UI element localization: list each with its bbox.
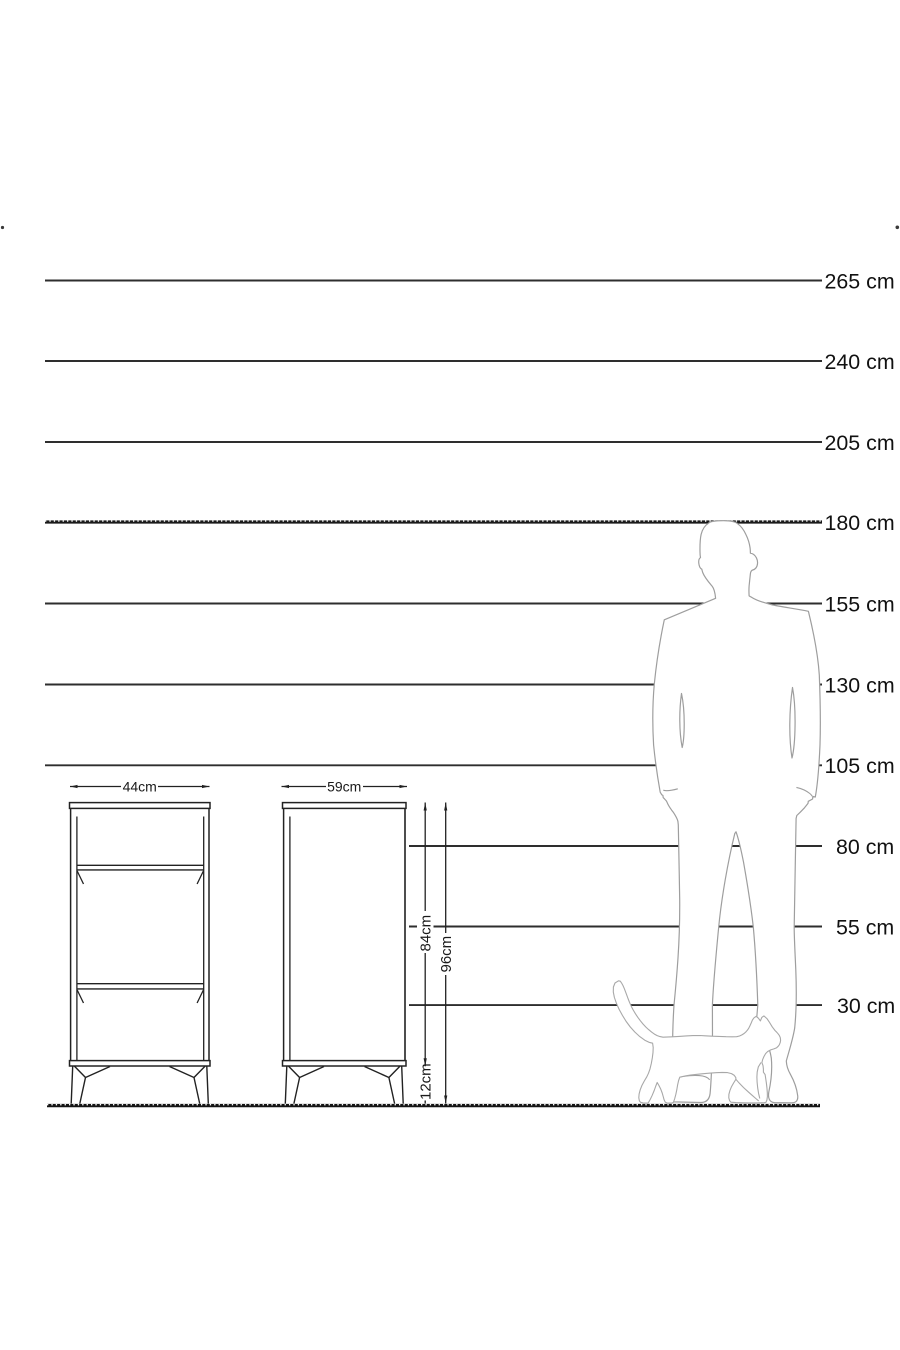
- svg-text:59cm: 59cm: [327, 779, 361, 795]
- svg-text:12cm: 12cm: [418, 1063, 435, 1100]
- svg-text:44cm: 44cm: [123, 779, 157, 795]
- svg-text:240 cm: 240 cm: [825, 350, 895, 374]
- svg-text:96cm: 96cm: [438, 936, 455, 973]
- svg-text:155 cm: 155 cm: [825, 592, 895, 616]
- svg-text:205 cm: 205 cm: [825, 431, 895, 455]
- svg-text:80 cm: 80 cm: [836, 835, 894, 859]
- svg-text:180 cm: 180 cm: [825, 511, 895, 535]
- svg-text:265 cm: 265 cm: [825, 269, 895, 293]
- svg-text:130 cm: 130 cm: [825, 673, 895, 697]
- svg-text:30 cm: 30 cm: [837, 994, 895, 1018]
- svg-text:55 cm: 55 cm: [836, 915, 894, 939]
- svg-text:105 cm: 105 cm: [825, 754, 895, 778]
- svg-text:84cm: 84cm: [418, 915, 435, 952]
